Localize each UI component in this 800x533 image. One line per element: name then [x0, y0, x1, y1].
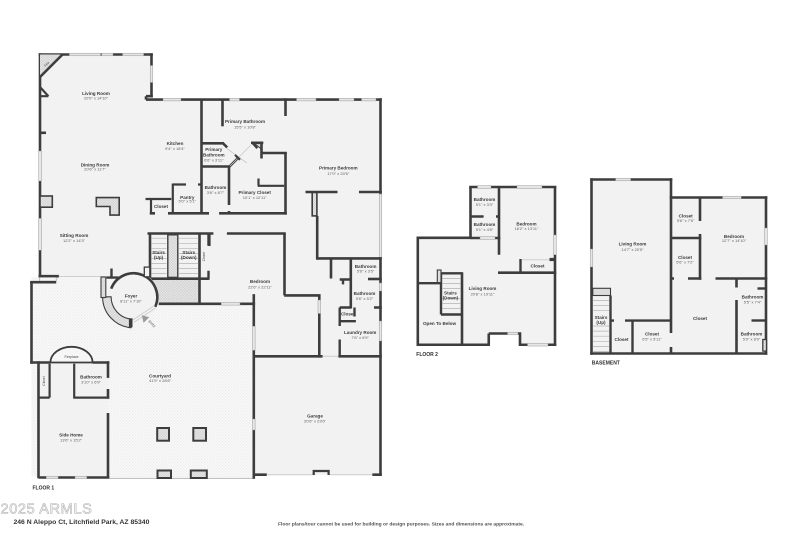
svg-text:Closet: Closet — [341, 311, 356, 316]
svg-text:Closet: Closet — [42, 376, 46, 385]
svg-text:Closet: Closet — [202, 252, 206, 261]
svg-text:Primary Bathroom: Primary Bathroom — [225, 119, 265, 124]
svg-text:9'4" x 18'4": 9'4" x 18'4" — [165, 146, 185, 151]
svg-text:6'5" x 5'11": 6'5" x 5'11" — [642, 336, 662, 341]
svg-text:22'6" x 22'11": 22'6" x 22'11" — [248, 284, 272, 289]
svg-text:5'6" x 5'2": 5'6" x 5'2" — [356, 296, 374, 301]
svg-text:20'0" x 14'10": 20'0" x 14'10" — [84, 95, 109, 100]
svg-text:Closet: Closet — [693, 316, 708, 321]
svg-text:15'5" x 10'8": 15'5" x 10'8" — [234, 124, 257, 129]
svg-text:5'1" x 3'3": 5'1" x 3'3" — [476, 202, 494, 207]
svg-text:20'8" x 19'11": 20'8" x 19'11" — [471, 291, 495, 296]
svg-text:(Up): (Up) — [596, 320, 606, 325]
svg-text:10'1" x 12'11": 10'1" x 12'11" — [243, 195, 267, 200]
svg-text:Closet: Closet — [530, 264, 545, 269]
svg-text:3'10" x 6'9": 3'10" x 6'9" — [81, 379, 101, 384]
svg-text:13'6" x 15'2": 13'6" x 15'2" — [60, 438, 83, 443]
svg-text:FLOOR 2: FLOOR 2 — [416, 352, 438, 358]
svg-text:14'7" x 20'5": 14'7" x 20'5" — [622, 247, 645, 252]
svg-text:5'6" x 7'5": 5'6" x 7'5" — [677, 218, 695, 223]
svg-text:12'7" x 14'10": 12'7" x 14'10" — [722, 238, 747, 243]
svg-text:5'6" x 3'5": 5'6" x 3'5" — [357, 269, 375, 274]
svg-text:7'6" x 6'9": 7'6" x 6'9" — [351, 335, 369, 340]
svg-text:(Up): (Up) — [154, 255, 164, 260]
svg-text:5'6" x 7'2": 5'6" x 7'2" — [676, 260, 694, 265]
svg-text:2025 ARMLS: 2025 ARMLS — [1, 502, 93, 518]
svg-text:Closet: Closet — [614, 337, 629, 342]
svg-text:5'0" x 5'1": 5'0" x 5'1" — [179, 199, 197, 204]
svg-text:Living Room: Living Room — [469, 286, 497, 291]
svg-text:6'6" x 3'11": 6'6" x 3'11" — [204, 158, 224, 163]
svg-text:20'6" x 11'7": 20'6" x 11'7" — [84, 167, 106, 172]
svg-text:5'9" x 8'9": 5'9" x 8'9" — [743, 336, 761, 341]
svg-text:16'2" x 13'11": 16'2" x 13'11" — [515, 226, 539, 231]
svg-text:41'9" x 28'8": 41'9" x 28'8" — [149, 378, 172, 383]
svg-text:5'1" x 4'8": 5'1" x 4'8" — [476, 227, 494, 232]
svg-text:BASEMENT: BASEMENT — [592, 360, 620, 366]
svg-text:Primary Bedroom: Primary Bedroom — [319, 166, 358, 171]
svg-text:3'6" x 8'7": 3'6" x 8'7" — [207, 190, 225, 195]
svg-text:Living Room: Living Room — [619, 242, 647, 247]
svg-text:246 N Aleppo Ct, Litchfield Pa: 246 N Aleppo Ct, Litchfield Park, AZ 853… — [14, 519, 150, 526]
svg-text:5'5" x 7'4": 5'5" x 7'4" — [744, 299, 762, 304]
svg-text:12'2" x 14'3": 12'2" x 14'3" — [63, 238, 86, 243]
svg-text:Open To Below: Open To Below — [423, 321, 457, 326]
svg-text:FLOOR 1: FLOOR 1 — [33, 485, 55, 491]
svg-text:20'6" x 23'6": 20'6" x 23'6" — [304, 419, 327, 424]
svg-text:Fireplace: Fireplace — [65, 355, 79, 359]
svg-text:(Down): (Down) — [443, 296, 459, 301]
svg-text:8'11" x 7'10": 8'11" x 7'10" — [120, 298, 142, 303]
svg-text:(Down): (Down) — [181, 255, 197, 260]
svg-text:Bedroom: Bedroom — [250, 279, 270, 284]
svg-text:Floor plans/tour cannot be use: Floor plans/tour cannot be used for buil… — [278, 521, 525, 527]
svg-text:Closet: Closet — [154, 204, 169, 209]
svg-text:17'0" x 20'6": 17'0" x 20'6" — [327, 171, 350, 176]
